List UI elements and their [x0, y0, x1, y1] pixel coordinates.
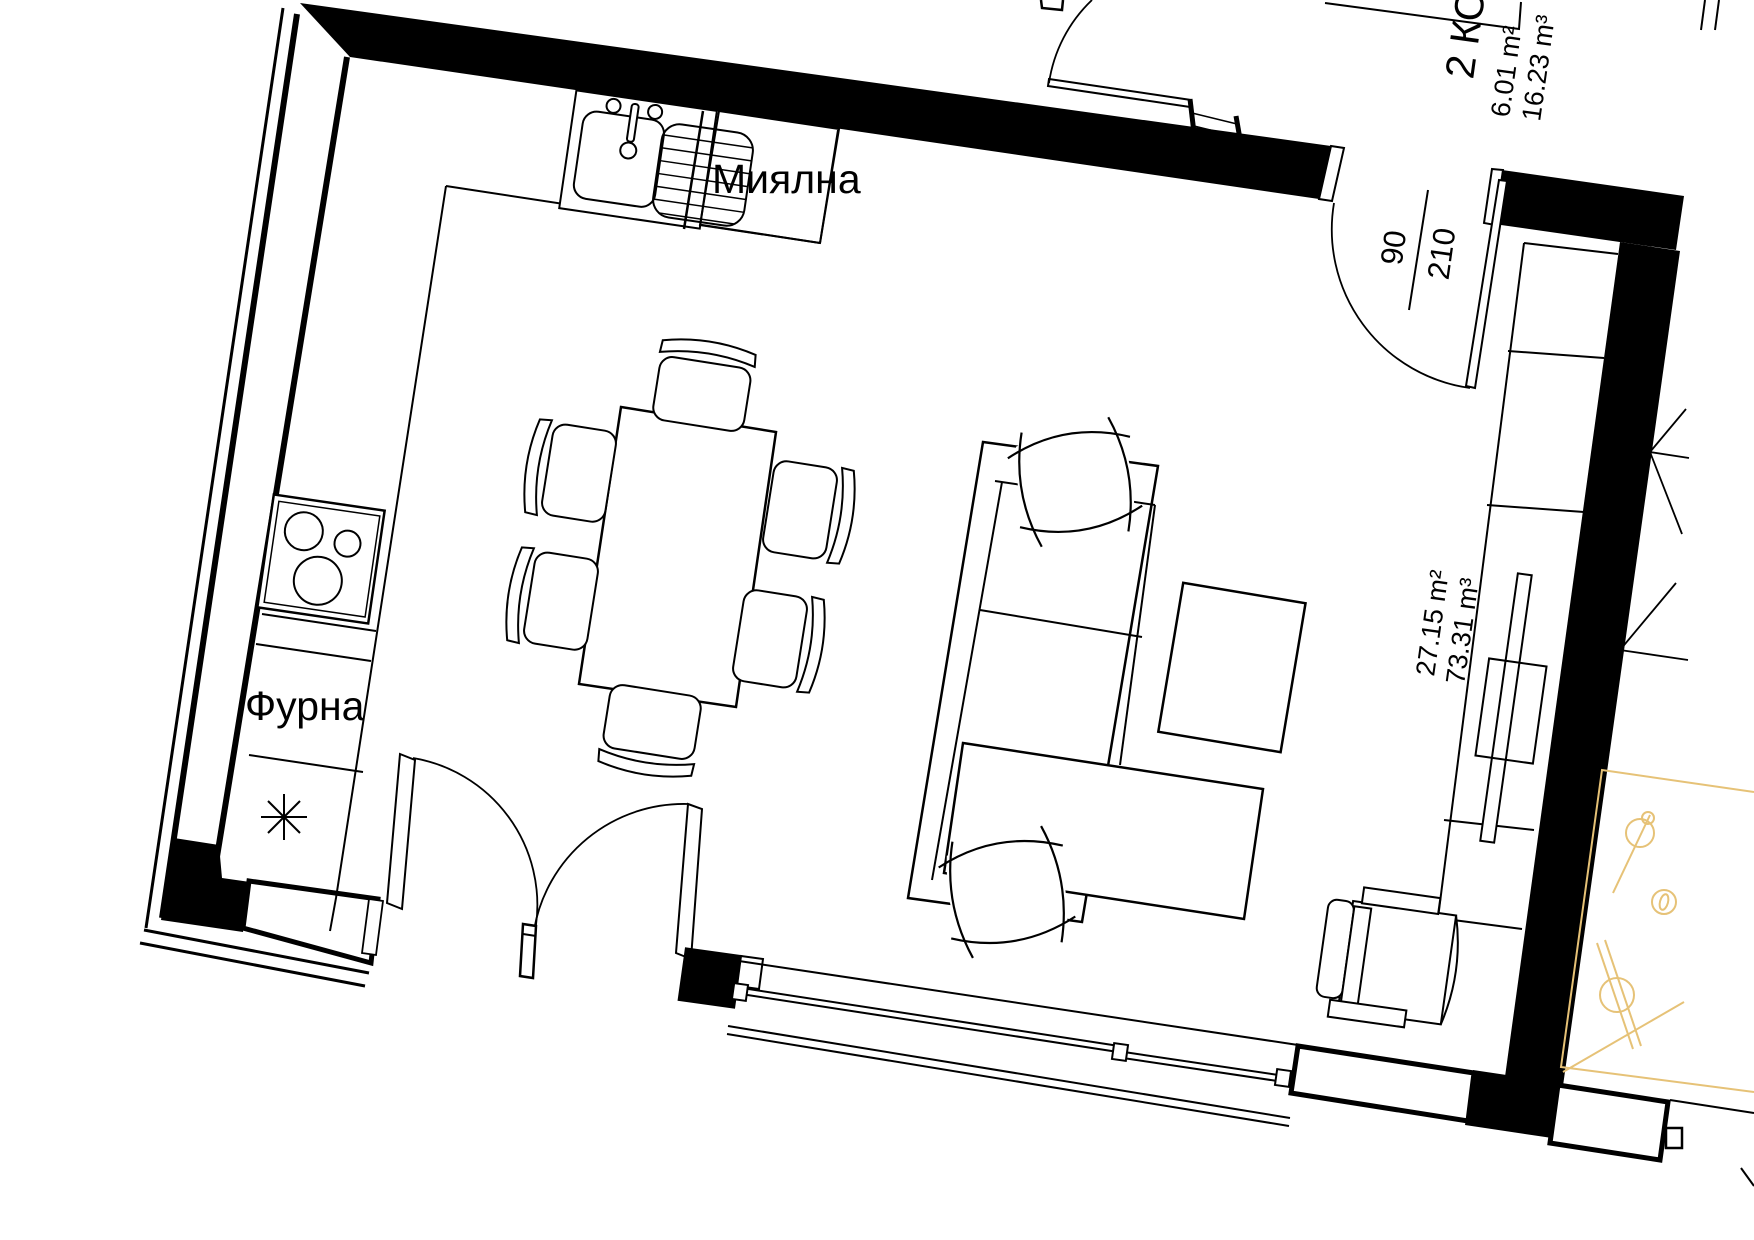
svg-text:90: 90: [1374, 228, 1413, 267]
svg-text:Фурна: Фурна: [245, 683, 365, 729]
svg-text:Миялна: Миялна: [712, 156, 861, 202]
svg-text:210: 210: [1421, 226, 1463, 282]
